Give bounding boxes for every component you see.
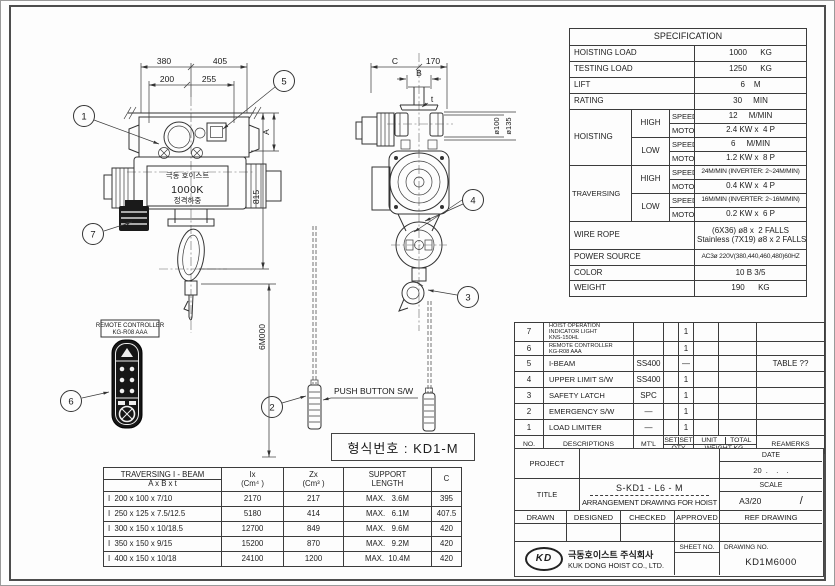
indicator-light	[119, 200, 149, 231]
dim-A: A	[261, 129, 271, 135]
ibeam-row: I 300 x 150 x 10/18.5 12700 849 MAX. 9.6…	[104, 522, 462, 537]
balloon-1: 1	[81, 112, 86, 123]
designed-label: DESIGNED	[567, 511, 621, 524]
dim-380: 380	[157, 56, 171, 66]
scale-extra: /	[800, 495, 803, 507]
specification-table: SPECIFICATION HOISTING LOAD1000 KG TESTI…	[569, 28, 806, 296]
ref-drawing-label: REF DRAWING	[720, 511, 822, 524]
parts-row: 2EMERGENCY S/W—1	[515, 404, 825, 420]
ibeam-row: I 400 x 150 x 10/18 24100 1200 MAX. 10.4…	[104, 552, 462, 567]
push-button-pendant: PUSH BUTTON S/W	[308, 226, 418, 429]
ibeam-table: TRAVERSING I - BEAMA x B x t Ix(Cm⁴ ) Zx…	[103, 467, 461, 567]
balloon-3: 3	[465, 293, 470, 304]
parts-list-table: 7HOIST OPERATION INDICATOR LIGHTKNS-150H…	[514, 322, 824, 448]
dim-dia100: ø100	[492, 117, 501, 134]
drawing-no-value: KD1M6000	[745, 557, 797, 568]
balloon-2: 2	[269, 403, 274, 414]
parts-row: 1LOAD LIMITER—1	[515, 420, 825, 436]
dim-t: t	[431, 94, 434, 104]
parts-row: 4UPPER LIMIT S/WSS4001	[515, 372, 825, 388]
approved-label: APPROVED	[675, 511, 720, 524]
ibeam-rows: I 200 x 100 x 7/10 2170 217 MAX. 3.6M 39…	[104, 492, 462, 567]
sheet-no-cell: SHEET NO.	[675, 542, 720, 575]
remote-label-line1: REMOTE CONTROLLER	[96, 323, 165, 329]
dim-B: B	[416, 68, 422, 78]
ibeam-header-row: TRAVERSING I - BEAMA x B x t Ix(Cm⁴ ) Zx…	[104, 468, 462, 492]
drawing-sheet: 극동 호이스트 1000K 정격하중	[0, 0, 835, 586]
parts-row: 6REMOTE CONTROLLERKG-R08 AAA1	[515, 342, 825, 356]
model-number-box: 형식번호 : KD1-M	[331, 433, 475, 461]
kd-logo: KD	[525, 547, 563, 571]
remote-label-line2: KG-R08 AAA	[112, 330, 147, 336]
balloon-5: 5	[281, 77, 286, 88]
remote-controller: REMOTE CONTROLLER KG-R08 AAA	[96, 320, 165, 428]
parts-row: 3SAFETY LATCHSPC1	[515, 388, 825, 404]
dim-200: 200	[160, 74, 174, 84]
nameplate-ratedload: 정격하중	[174, 195, 202, 205]
front-view: 극동 호이스트 1000K 정격하중	[104, 97, 281, 333]
nameplate-capacity: 1000K	[171, 184, 204, 196]
dim-255: 255	[202, 74, 216, 84]
dim-dia135: ø135	[504, 117, 513, 134]
scale-value: A3/20	[739, 496, 761, 506]
side-view: C 170 B t ø100 ø135	[356, 53, 516, 431]
ibeam-row: I 350 x 150 x 9/15 15200 870 MAX. 9.2M 4…	[104, 537, 462, 552]
dim-C: C	[392, 56, 398, 66]
title-block: PROJECT DATE 20 . . . TITLE S-KD1 - L6 -…	[514, 448, 824, 577]
push-button-label: PUSH BUTTON S/W	[334, 386, 413, 396]
company-cell: KD 극동호이스트 주식회사 KUK DONG HOIST CO., LTD.	[515, 542, 675, 575]
hoist-arrangement-drawing: 극동 호이스트 1000K 정격하중	[1, 1, 566, 471]
ibeam-row: I 200 x 100 x 7/10 2170 217 MAX. 3.6M 39…	[104, 492, 462, 507]
parts-row: 7HOIST OPERATION INDICATOR LIGHTKNS-150H…	[515, 323, 825, 342]
dim-405: 405	[213, 56, 227, 66]
dim-815: 815	[251, 190, 261, 204]
checked-label: CHECKED	[621, 511, 675, 524]
balloon-6: 6	[68, 397, 73, 408]
parts-row: 5I-BEAMSS400—TABLE ??	[515, 356, 825, 372]
front-dimensions: 380 405 200 255 A 815 6M000	[141, 56, 279, 457]
drawn-label: DRAWN	[515, 511, 567, 524]
scale-cell: SCALE A3/20 /	[720, 479, 822, 511]
ibeam-row: I 250 x 125 x 7.5/12.5 5180 414 MAX. 6.1…	[104, 507, 462, 522]
rope-shackle	[175, 228, 207, 283]
model-number-text: 형식번호 : KD1-M	[347, 438, 458, 457]
balloon-7: 7	[90, 230, 95, 241]
project-value	[580, 449, 720, 479]
date-value: 20 . . .	[753, 466, 788, 475]
company-name-kr: 극동호이스트 주식회사	[568, 548, 664, 561]
date-cell: DATE 20 . . .	[720, 449, 822, 479]
nameplate-brand: 극동 호이스트	[166, 170, 210, 180]
balloon-4: 4	[470, 196, 475, 207]
title-label: TITLE	[515, 479, 580, 511]
drawing-no-cell: DRAWING NO. KD1M6000	[720, 542, 822, 575]
company-name-en: KUK DONG HOIST CO., LTD.	[568, 561, 664, 570]
project-label: PROJECT	[515, 449, 580, 479]
dim-170: 170	[426, 56, 440, 66]
title-value: S-KD1 - L6 - M ARRANGEMENT DRAWING FOR H…	[580, 479, 720, 511]
spec-title: SPECIFICATION	[570, 29, 807, 46]
dim-6M000: 6M000	[257, 324, 267, 350]
